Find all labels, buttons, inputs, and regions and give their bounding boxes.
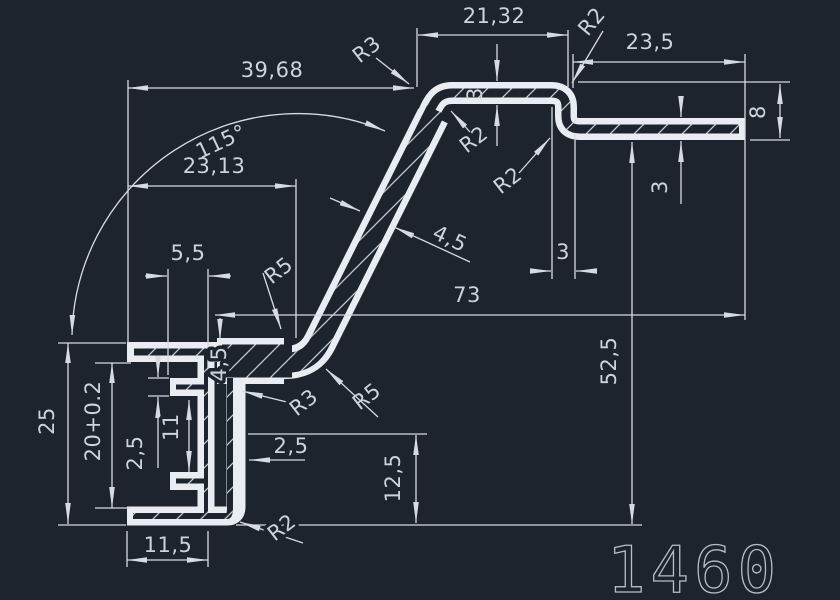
cad-drawing-canvas: 39,68 21,32 23,5 115° 23,13 5,5 73 52,5 … bbox=[0, 0, 840, 600]
dim-label-39-68: 39,68 bbox=[241, 58, 304, 82]
dim-label-2-5-wall: 2,5 bbox=[274, 434, 309, 458]
dim-label-3-arm: 3 bbox=[648, 180, 672, 194]
dim-label-11: 11 bbox=[159, 413, 183, 441]
dim-label-3-step: 3 bbox=[556, 240, 570, 264]
dim-label-4-5-junction: 4,5 bbox=[207, 347, 231, 382]
dim-label-21-32: 21,32 bbox=[463, 4, 526, 28]
dim-label-5-5: 5,5 bbox=[171, 241, 206, 265]
dim-label-2-5-tooth: 2,5 bbox=[123, 436, 147, 471]
part-number: 1460 bbox=[607, 534, 781, 600]
dim-label-20-tol: 20+0.2 bbox=[81, 381, 105, 462]
dim-label-25: 25 bbox=[35, 407, 59, 435]
dim-label-52-5: 52,5 bbox=[597, 337, 621, 386]
dim-label-3-top: 3 bbox=[463, 87, 487, 101]
dim-label-8: 8 bbox=[746, 105, 770, 119]
dim-label-12-5: 12,5 bbox=[381, 454, 405, 503]
dim-label-23-5: 23,5 bbox=[626, 30, 675, 54]
dim-label-23-13: 23,13 bbox=[183, 154, 246, 178]
dim-label-73: 73 bbox=[453, 283, 481, 307]
dim-label-11-5: 11,5 bbox=[144, 533, 193, 557]
section-hatching bbox=[0, 0, 840, 600]
profile-cross-section bbox=[0, 0, 840, 600]
